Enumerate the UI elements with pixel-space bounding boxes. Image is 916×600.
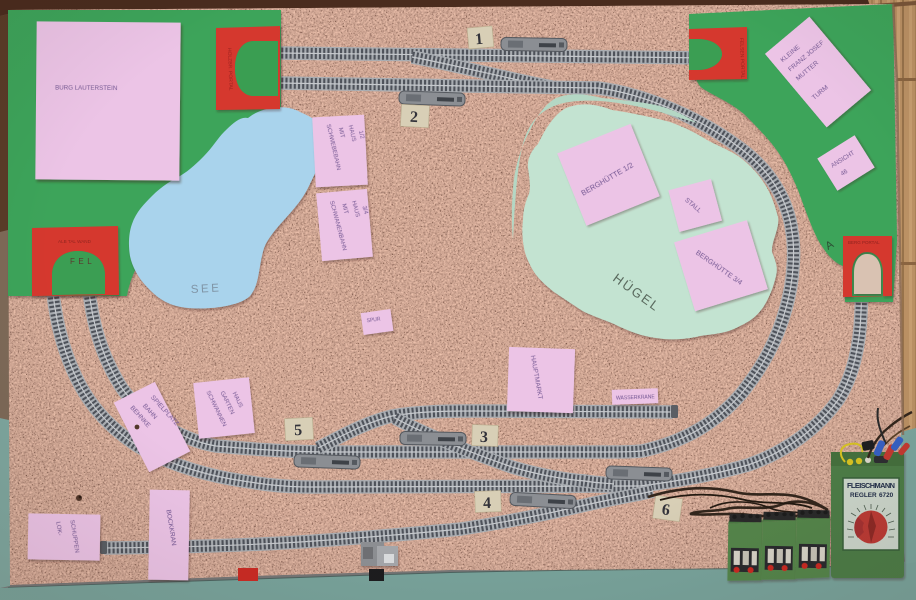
svg-text:2: 2 — [409, 109, 418, 126]
svg-text:BURG LAUTERSTEIN: BURG LAUTERSTEIN — [55, 85, 117, 93]
svg-text:1: 1 — [474, 31, 483, 49]
svg-text:REGLER: REGLER — [850, 492, 877, 499]
svg-text:5: 5 — [294, 422, 303, 439]
svg-text:ALB TAL WAND: ALB TAL WAND — [58, 239, 92, 244]
svg-text:4: 4 — [483, 495, 492, 512]
svg-text:FEL: FEL — [70, 257, 95, 266]
svg-text:3: 3 — [480, 429, 489, 446]
svg-text:BERG PORTAL: BERG PORTAL — [848, 240, 880, 245]
svg-text:6720: 6720 — [879, 492, 894, 499]
svg-text:FLEISCHMANN: FLEISCHMANN — [847, 481, 895, 490]
svg-text:SEE: SEE — [191, 282, 222, 296]
